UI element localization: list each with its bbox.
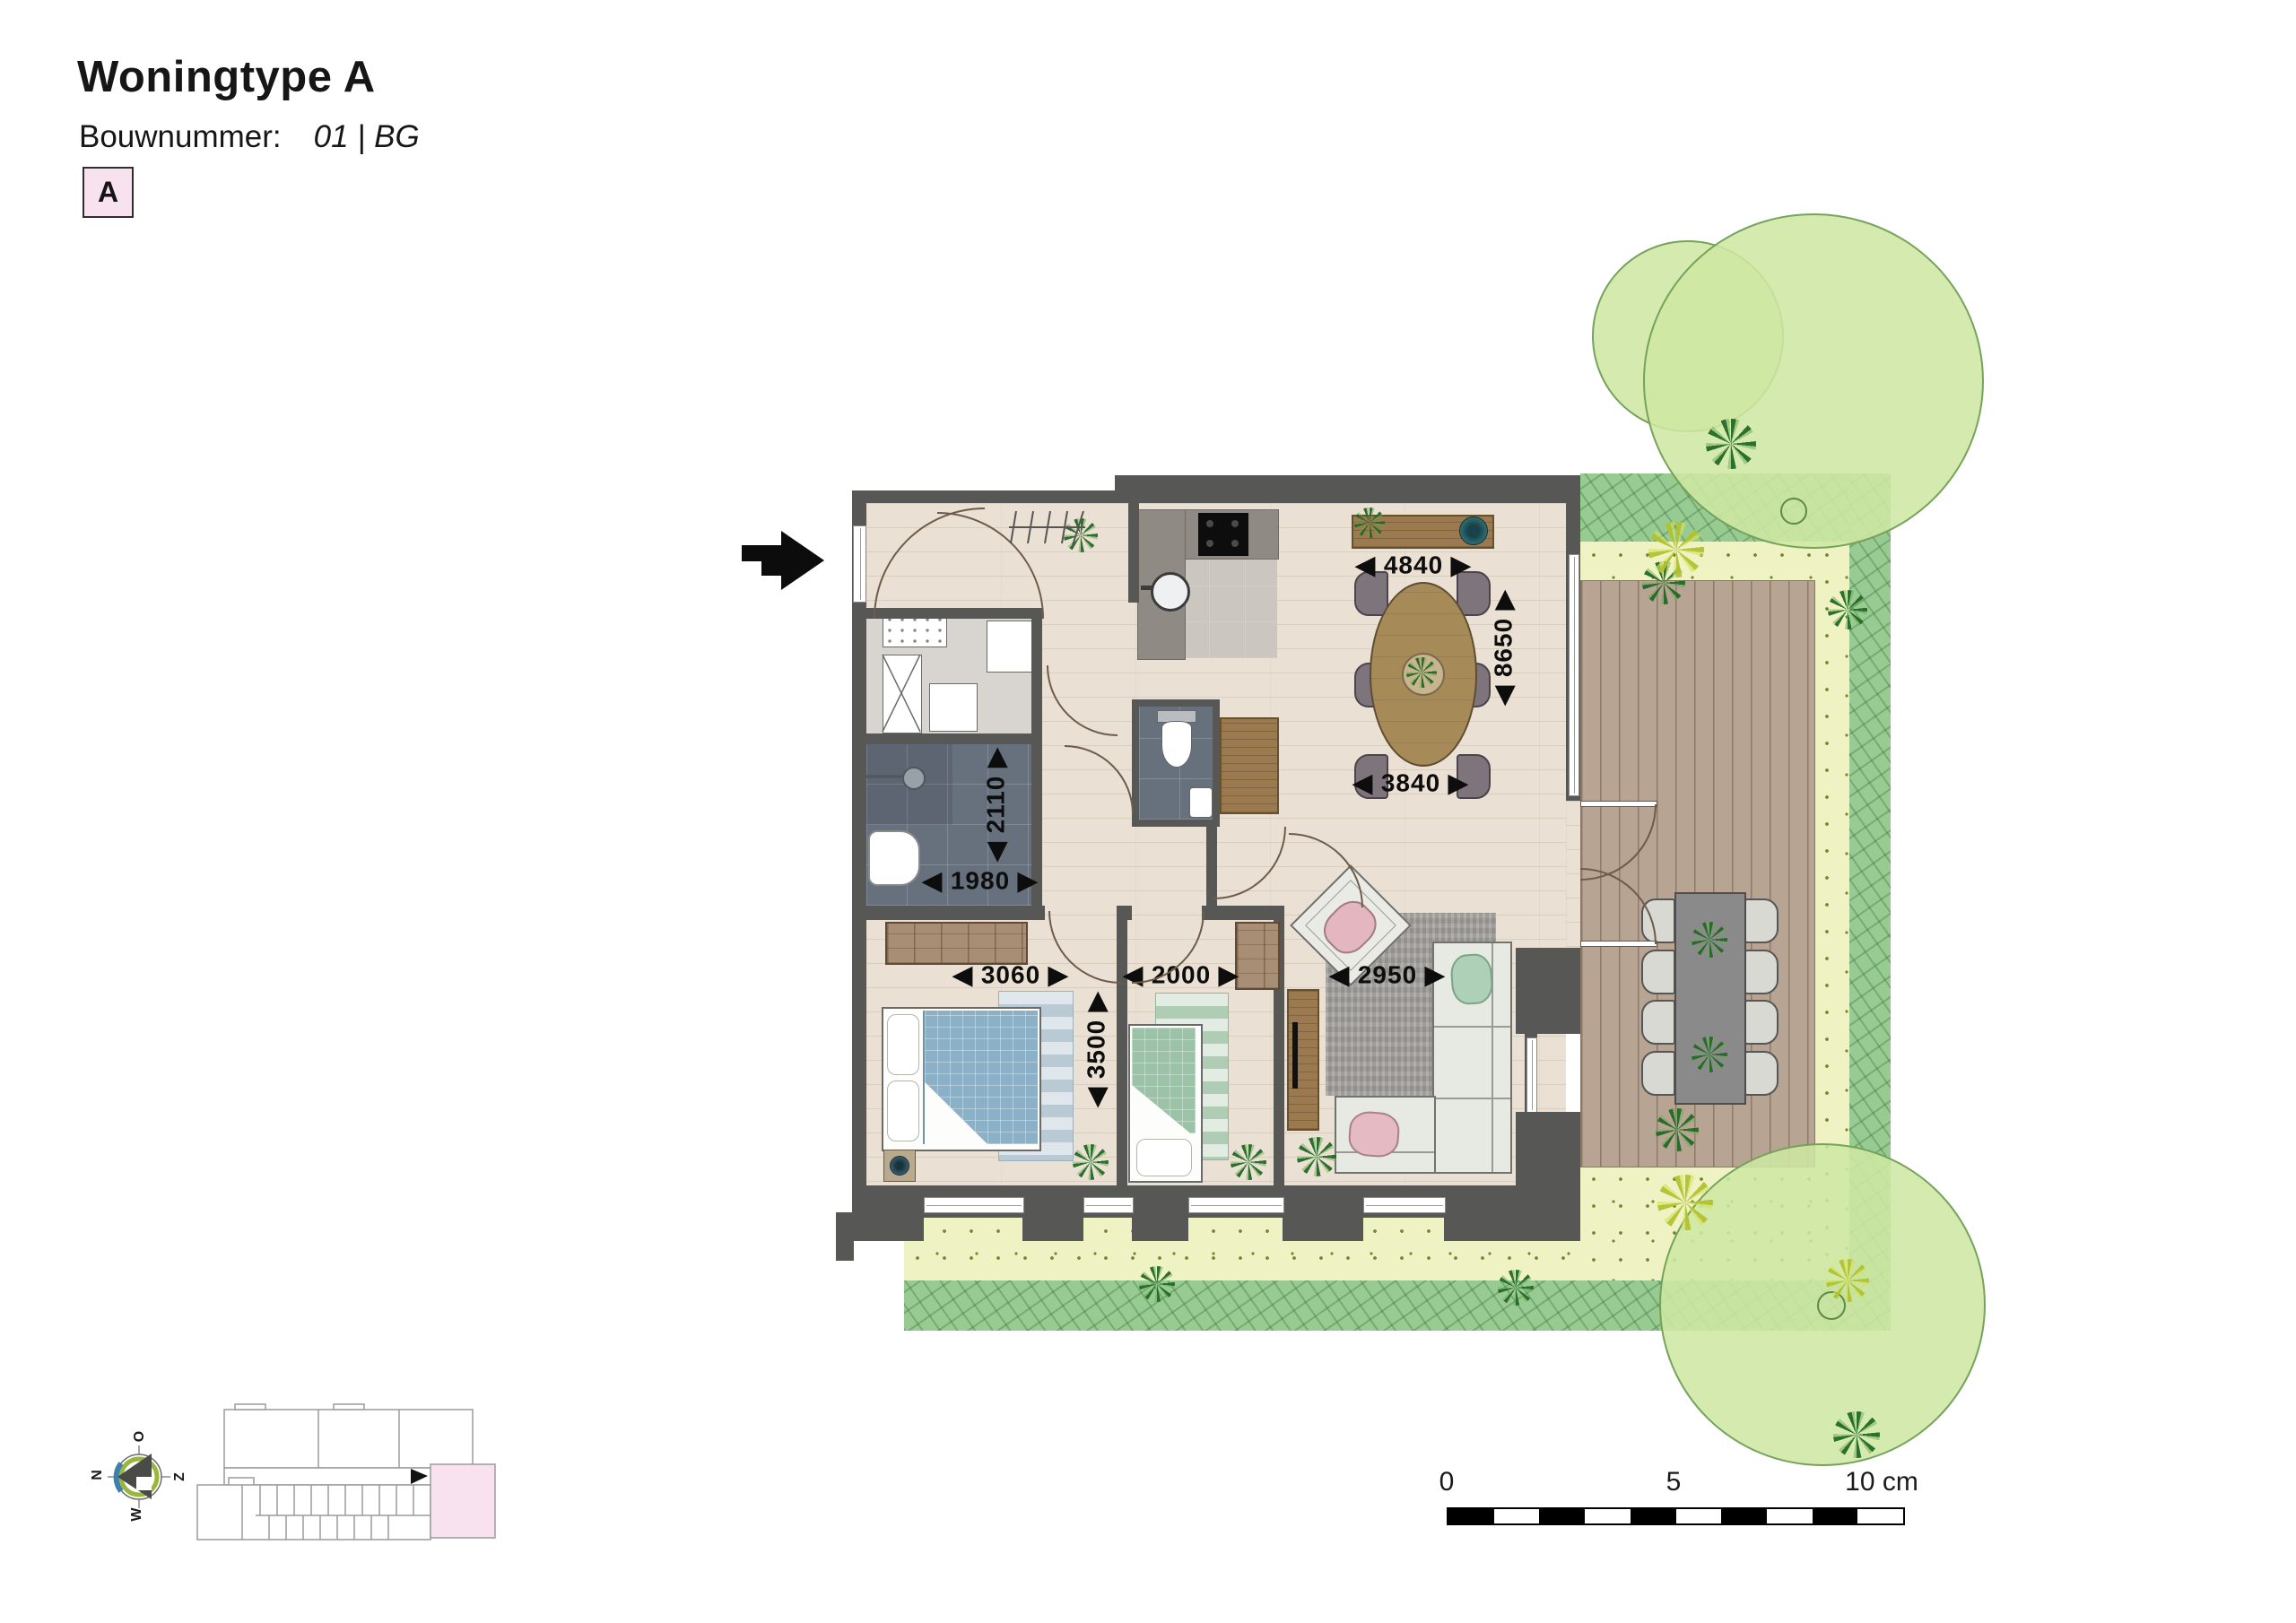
scale-segment [1539,1509,1585,1523]
door-arc-living [1289,834,1362,907]
door-arc-bedroom1 [1049,911,1121,983]
scale-segment [1631,1509,1676,1523]
door-arc-entry [874,508,985,619]
compass-label-z: Z [172,1472,187,1481]
compass-label-n: N [90,1470,105,1480]
meter-cupboard-x [883,655,920,732]
scale-bar [1447,1507,1905,1525]
plan-overlay: O N Z W [0,0,2296,1623]
door-arc-bathroom [1065,746,1133,814]
scale-segment [1721,1509,1767,1523]
scale-label-0: 0 [1439,1467,1455,1497]
compass-label-w: W [129,1507,144,1522]
door-arc-french-top [1580,804,1656,880]
entry-arrow-icon [742,531,824,590]
scale-segment [1448,1509,1494,1523]
compass-label-o: O [132,1431,147,1442]
scale-segment [1676,1509,1722,1523]
door-arc-bedroom2 [1132,911,1204,983]
scale-label-5: 5 [1666,1467,1682,1497]
door-arc-french-bottom [1580,869,1656,944]
site-plan-highlight-unit [430,1464,495,1538]
scale-segment [1494,1509,1540,1523]
scale-segment [1813,1509,1858,1523]
coat-rack-icon [1009,511,1085,545]
scale-segment [1585,1509,1631,1523]
site-plan [197,1404,495,1540]
scale-segment [1857,1509,1903,1523]
scale-segment [1767,1509,1813,1523]
door-arc-entry2 [937,513,1043,619]
floorplan-page: Woningtype A Bouwnummer:01 | BG A [0,0,2296,1623]
door-arcs [874,508,1656,983]
scale-label-10cm: 10 cm [1845,1467,1918,1497]
door-arc-toilet [1213,827,1285,898]
compass-icon: O N Z W [90,1431,187,1522]
door-arc-kitchen [1048,665,1118,735]
